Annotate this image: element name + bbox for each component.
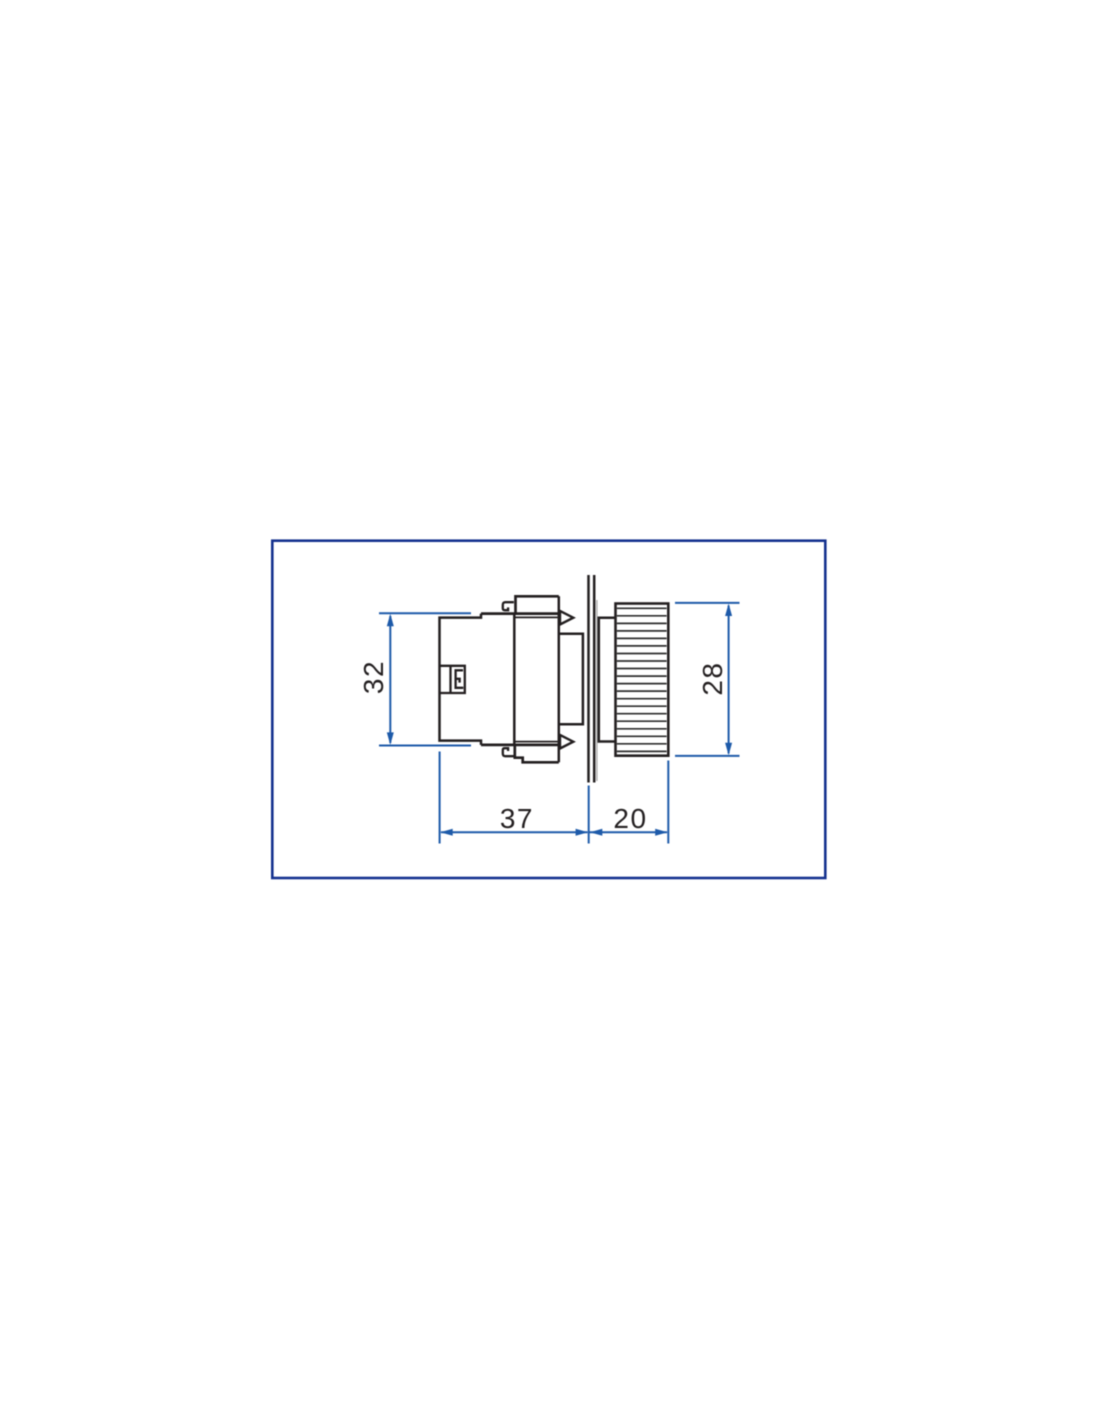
svg-text:37: 37 — [500, 803, 534, 834]
svg-text:28: 28 — [697, 662, 728, 696]
svg-text:32: 32 — [358, 660, 389, 694]
svg-text:20: 20 — [613, 803, 647, 834]
